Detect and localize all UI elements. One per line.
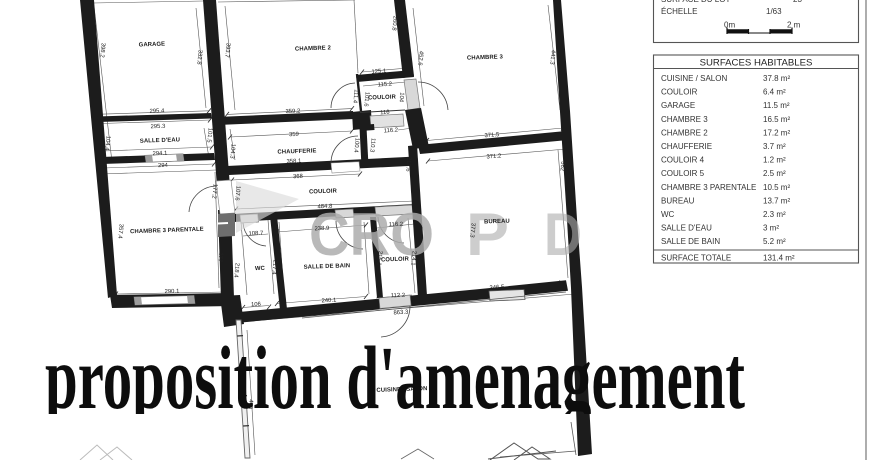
svg-text:13.7 m²: 13.7 m² <box>763 196 790 205</box>
svg-text:BUREAU: BUREAU <box>484 219 510 226</box>
svg-text:116.2: 116.2 <box>389 222 404 229</box>
svg-text:359.2: 359.2 <box>285 108 300 115</box>
svg-text:COULOIR: COULOIR <box>661 88 698 97</box>
svg-text:2 m: 2 m <box>787 21 801 30</box>
svg-text:3.7 m²: 3.7 m² <box>763 142 786 151</box>
svg-text:COULOIR: COULOIR <box>368 94 397 101</box>
svg-text:863.3: 863.3 <box>393 310 409 317</box>
svg-text:177: 177 <box>216 252 223 262</box>
svg-text:17.2 m²: 17.2 m² <box>763 128 790 137</box>
svg-text:11.5 m²: 11.5 m² <box>763 101 790 110</box>
svg-text:115.2: 115.2 <box>378 82 393 89</box>
svg-text:SURFACE DU LOT: SURFACE DU LOT <box>661 0 730 4</box>
svg-text:371.5: 371.5 <box>484 132 500 139</box>
svg-text:294: 294 <box>158 163 169 169</box>
svg-text:112.2: 112.2 <box>391 293 406 300</box>
svg-text:CHAMBRE 3: CHAMBRE 3 <box>661 115 708 124</box>
svg-text:proposition d'amenagement: proposition d'amenagement <box>45 329 745 428</box>
svg-text:GARAGE: GARAGE <box>661 101 695 110</box>
svg-text:COULOIR 5: COULOIR 5 <box>661 169 705 178</box>
svg-text:37.8 m²: 37.8 m² <box>763 74 790 83</box>
svg-text:COULOIR: COULOIR <box>309 188 338 195</box>
svg-text:CHAMBRE 2: CHAMBRE 2 <box>295 45 332 52</box>
svg-text:2.5 m²: 2.5 m² <box>763 169 786 178</box>
svg-text:16.5 m²: 16.5 m² <box>763 115 790 124</box>
svg-text:10.5 m²: 10.5 m² <box>763 183 790 192</box>
svg-text:2.3 m²: 2.3 m² <box>763 210 786 219</box>
svg-text:295.4: 295.4 <box>149 108 165 115</box>
svg-text:COULOIR: COULOIR <box>381 256 410 263</box>
svg-text:358.1: 358.1 <box>286 158 301 165</box>
svg-text:3 m²: 3 m² <box>763 224 779 233</box>
svg-text:0m: 0m <box>724 21 735 30</box>
svg-text:WC: WC <box>255 266 266 272</box>
svg-text:23: 23 <box>793 0 802 4</box>
svg-text:SURFACE TOTALE: SURFACE TOTALE <box>661 254 731 263</box>
svg-text:D: D <box>544 201 582 268</box>
svg-text:116: 116 <box>380 110 391 117</box>
svg-text:SURFACES HABITABLES: SURFACES HABITABLES <box>700 58 813 69</box>
svg-text:ÉCHELLE: ÉCHELLE <box>661 7 697 16</box>
svg-text:CHAMBRE 2: CHAMBRE 2 <box>661 128 708 137</box>
svg-text:6.4 m²: 6.4 m² <box>763 88 786 97</box>
svg-text:CHAUFFERIE: CHAUFFERIE <box>661 142 712 151</box>
svg-text:SALLE D'EAU: SALLE D'EAU <box>661 224 712 233</box>
svg-text:362: 362 <box>558 161 565 171</box>
svg-text:484.8: 484.8 <box>317 204 333 211</box>
svg-text:1/63: 1/63 <box>766 7 782 16</box>
svg-text:116.2: 116.2 <box>384 128 399 135</box>
svg-text:371.2: 371.2 <box>486 153 501 160</box>
svg-text:5.2 m²: 5.2 m² <box>763 237 786 246</box>
svg-text:368: 368 <box>293 174 304 180</box>
svg-text:1.2 m²: 1.2 m² <box>763 156 786 165</box>
svg-text:290.1: 290.1 <box>165 289 180 295</box>
svg-text:SALLE DE BAIN: SALLE DE BAIN <box>661 237 720 246</box>
svg-text:COULOIR 4: COULOIR 4 <box>661 156 705 165</box>
svg-text:295.3: 295.3 <box>150 124 166 131</box>
svg-text:294.1: 294.1 <box>152 151 167 158</box>
svg-text:BUREAU: BUREAU <box>661 196 695 205</box>
svg-text:104: 104 <box>397 92 404 103</box>
svg-text:106: 106 <box>251 302 262 308</box>
svg-text:346.5: 346.5 <box>489 285 505 292</box>
svg-text:359: 359 <box>289 132 299 138</box>
svg-text:CHAMBRE 3: CHAMBRE 3 <box>467 54 504 61</box>
svg-text:125.1: 125.1 <box>371 68 386 75</box>
svg-text:GARAGE: GARAGE <box>139 42 166 49</box>
svg-text:131.4 m²: 131.4 m² <box>763 254 795 263</box>
svg-text:238.9: 238.9 <box>314 226 329 233</box>
svg-text:240.1: 240.1 <box>321 298 336 305</box>
svg-text:108.7: 108.7 <box>248 231 263 238</box>
svg-text:CUISINE / SALON: CUISINE / SALON <box>661 74 727 83</box>
svg-text:WC: WC <box>661 210 675 219</box>
svg-text:CHAMBRE 3 PARENTALE: CHAMBRE 3 PARENTALE <box>661 183 756 192</box>
